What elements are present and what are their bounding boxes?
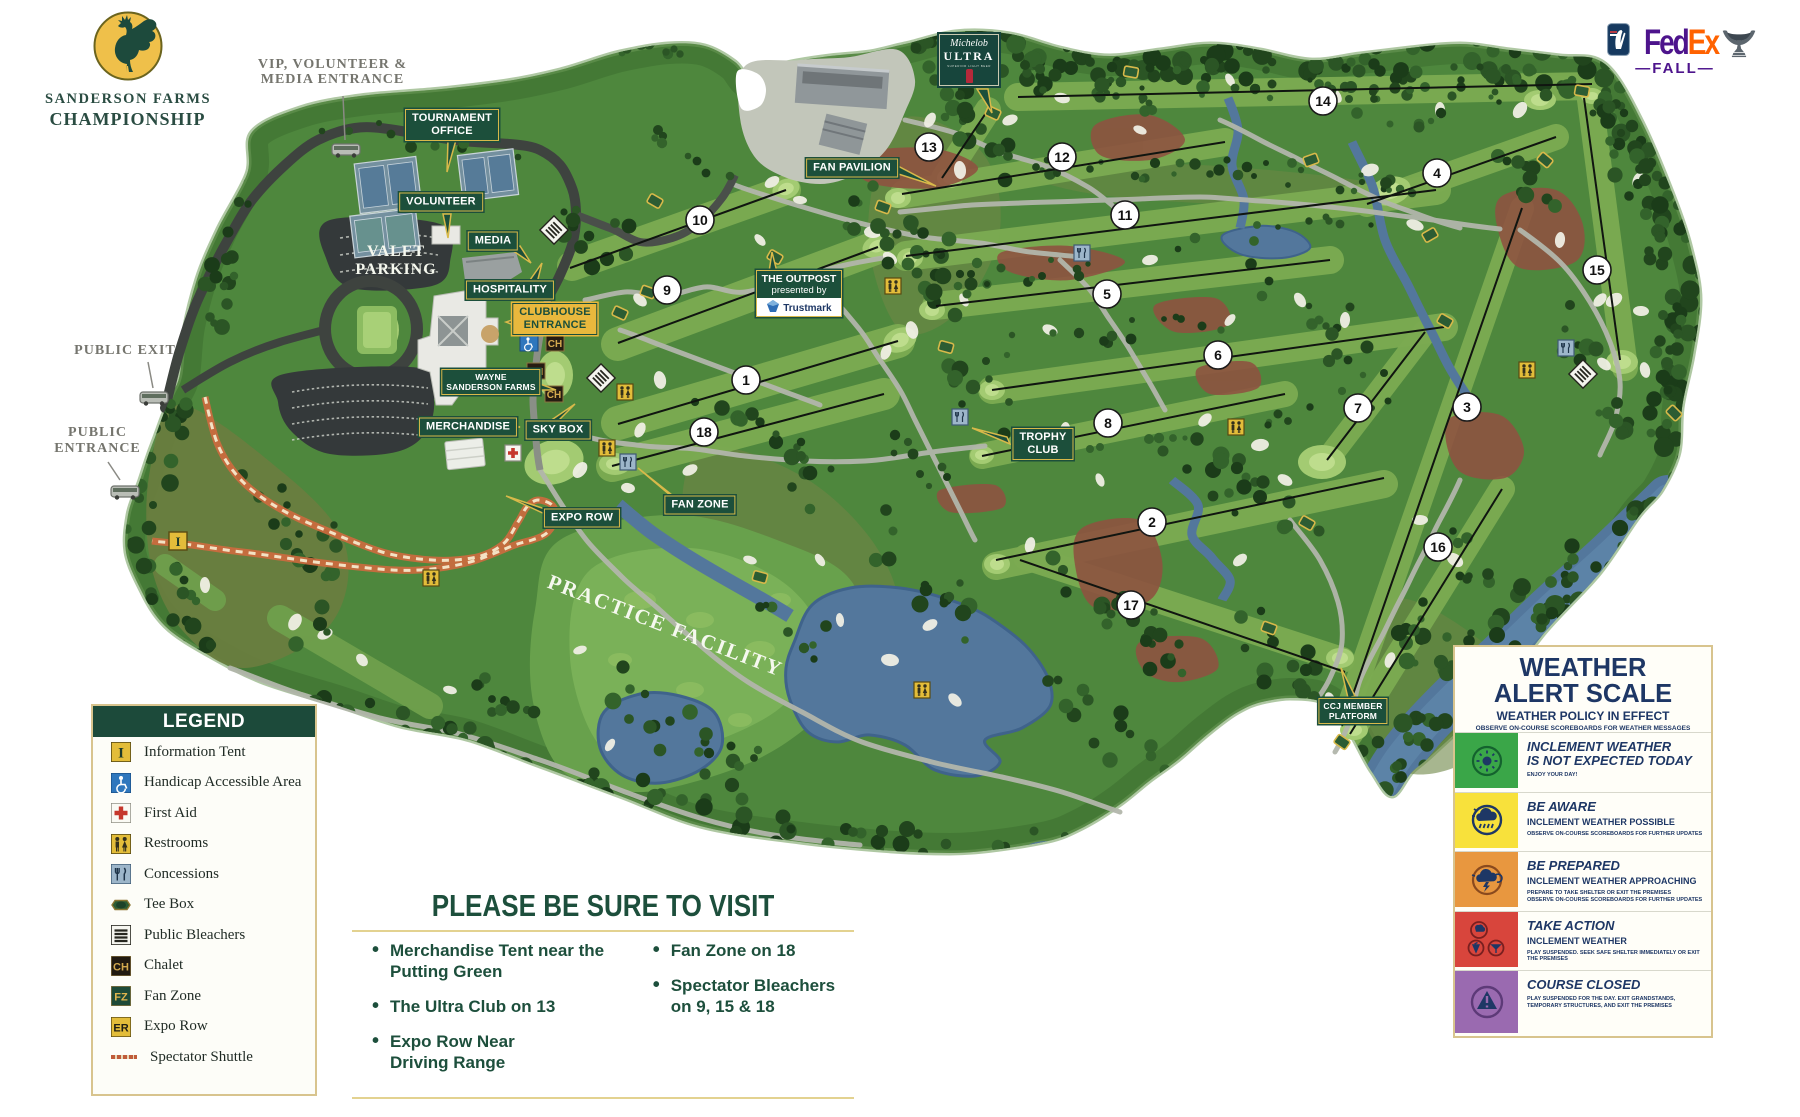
svg-text:4: 4: [1433, 165, 1441, 181]
svg-text:CH: CH: [548, 339, 562, 350]
svg-text:13: 13: [921, 139, 937, 155]
svg-text:3: 3: [1463, 399, 1471, 415]
svg-text:PARKING: PARKING: [355, 261, 436, 278]
svg-text:I: I: [175, 534, 180, 549]
svg-text:1: 1: [742, 372, 750, 388]
svg-text:VALET: VALET: [367, 243, 425, 260]
svg-text:7: 7: [1354, 400, 1362, 416]
svg-text:18: 18: [696, 424, 712, 440]
svg-text:5: 5: [1103, 286, 1111, 302]
svg-text:I: I: [118, 746, 124, 762]
svg-text:CH: CH: [113, 961, 129, 973]
svg-text:ER: ER: [113, 1022, 128, 1034]
svg-text:12: 12: [1054, 149, 1070, 165]
svg-text:17: 17: [1123, 597, 1139, 613]
svg-text:15: 15: [1589, 262, 1605, 278]
svg-text:9: 9: [663, 282, 671, 298]
svg-text:8: 8: [1104, 415, 1112, 431]
svg-text:6: 6: [1214, 347, 1222, 363]
svg-text:2: 2: [1148, 514, 1156, 530]
svg-text:CH: CH: [547, 390, 561, 401]
svg-text:FZ: FZ: [114, 992, 128, 1004]
svg-text:14: 14: [1315, 93, 1331, 109]
svg-text:10: 10: [692, 212, 708, 228]
svg-text:11: 11: [1118, 207, 1133, 223]
svg-text:16: 16: [1430, 539, 1446, 555]
